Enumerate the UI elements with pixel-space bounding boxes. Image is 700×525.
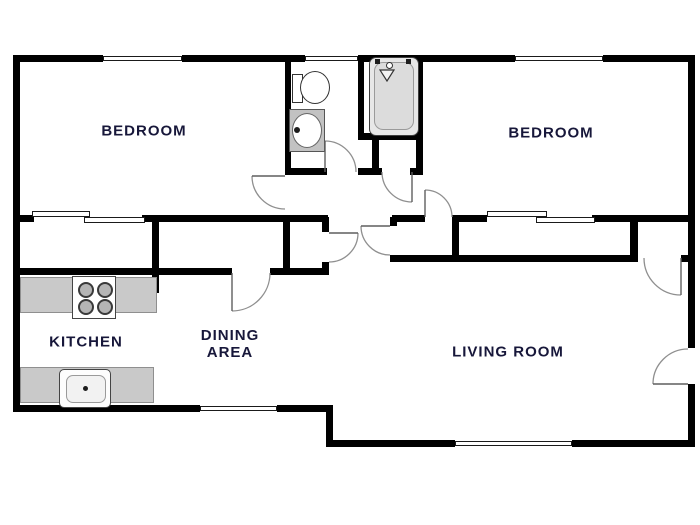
stove-burner bbox=[97, 299, 113, 315]
door-arc-coatcloset bbox=[644, 258, 681, 295]
door-arc-utility bbox=[232, 273, 270, 311]
wall-dining-top-a bbox=[13, 268, 232, 275]
sliding-door-closet1-panel-b bbox=[84, 217, 145, 223]
wall-utility-east bbox=[283, 217, 290, 275]
bathroom-sink-faucet bbox=[294, 127, 300, 133]
floor-plan: BEDROOM BEDROOM KITCHEN DINING AREA LIVI… bbox=[0, 0, 700, 525]
living-room-label: LIVING ROOM bbox=[452, 344, 564, 361]
wall-coatcloset-west bbox=[630, 222, 638, 262]
window-bedroom1 bbox=[103, 55, 182, 62]
door-arc-bedroom2 bbox=[425, 190, 452, 217]
stove-burner bbox=[78, 299, 94, 315]
door-arc-furnace bbox=[361, 226, 390, 255]
window-glass bbox=[515, 56, 603, 61]
wall-furnace-jamb bbox=[390, 217, 397, 226]
bathroom-sink-icon bbox=[289, 109, 325, 152]
wall-bathroom-bottom bbox=[285, 168, 327, 175]
window-dining bbox=[200, 405, 277, 412]
wall-bedroom1-bottom-a bbox=[13, 215, 34, 222]
wall-dining-top-b bbox=[270, 268, 329, 275]
window-glass bbox=[200, 406, 277, 411]
door-arc-bedroom1 bbox=[252, 176, 285, 209]
wall-right-lower bbox=[688, 384, 695, 447]
dining-label: DINING AREA bbox=[201, 327, 260, 361]
kitchen-sink-drain bbox=[83, 386, 88, 391]
bathtub-handle-left bbox=[375, 59, 380, 64]
toilet-icon bbox=[300, 71, 330, 104]
bathtub-icon bbox=[369, 57, 419, 136]
dining-label-line2: AREA bbox=[201, 344, 260, 361]
door-arc-linen bbox=[382, 172, 412, 202]
wall-bedroom1-bottom-b bbox=[142, 215, 328, 222]
window-living bbox=[455, 440, 572, 447]
wall-linen-jamb-west bbox=[358, 168, 382, 175]
wall-closets-bottom bbox=[390, 255, 638, 262]
kitchen-sink-icon bbox=[59, 369, 111, 408]
bathtub-basin bbox=[374, 62, 414, 130]
bedroom1-label: BEDROOM bbox=[101, 123, 186, 140]
kitchen-label: KITCHEN bbox=[49, 334, 123, 351]
wall-bathroom-divider bbox=[358, 55, 364, 140]
window-glass bbox=[305, 56, 358, 61]
door-arc-entry bbox=[653, 349, 688, 384]
bathtub-faucet bbox=[386, 62, 393, 69]
dining-label-line1: DINING bbox=[201, 327, 260, 344]
bedroom2-label: BEDROOM bbox=[508, 125, 593, 142]
wall-bedroom2-bottom-c bbox=[592, 215, 688, 222]
window-bedroom2 bbox=[515, 55, 603, 62]
window-bathroom bbox=[305, 55, 358, 62]
wall-hallcloset-jamb-top bbox=[322, 217, 329, 232]
door-arc-hallcloset bbox=[329, 233, 358, 262]
sliding-door-closet1-panel-a bbox=[32, 211, 90, 217]
wall-right-upper bbox=[688, 55, 695, 348]
stove-icon bbox=[72, 276, 116, 319]
bathtub-handle-right bbox=[406, 59, 411, 64]
wall-left bbox=[13, 55, 20, 412]
wall-coatcloset-jamb bbox=[681, 255, 688, 262]
stove-burner bbox=[78, 282, 94, 298]
window-glass bbox=[103, 56, 182, 61]
stove-burner bbox=[97, 282, 113, 298]
window-glass bbox=[455, 441, 572, 446]
sliding-door-closet2-panel-b bbox=[536, 217, 595, 223]
door-arc-bathroom bbox=[325, 141, 356, 172]
